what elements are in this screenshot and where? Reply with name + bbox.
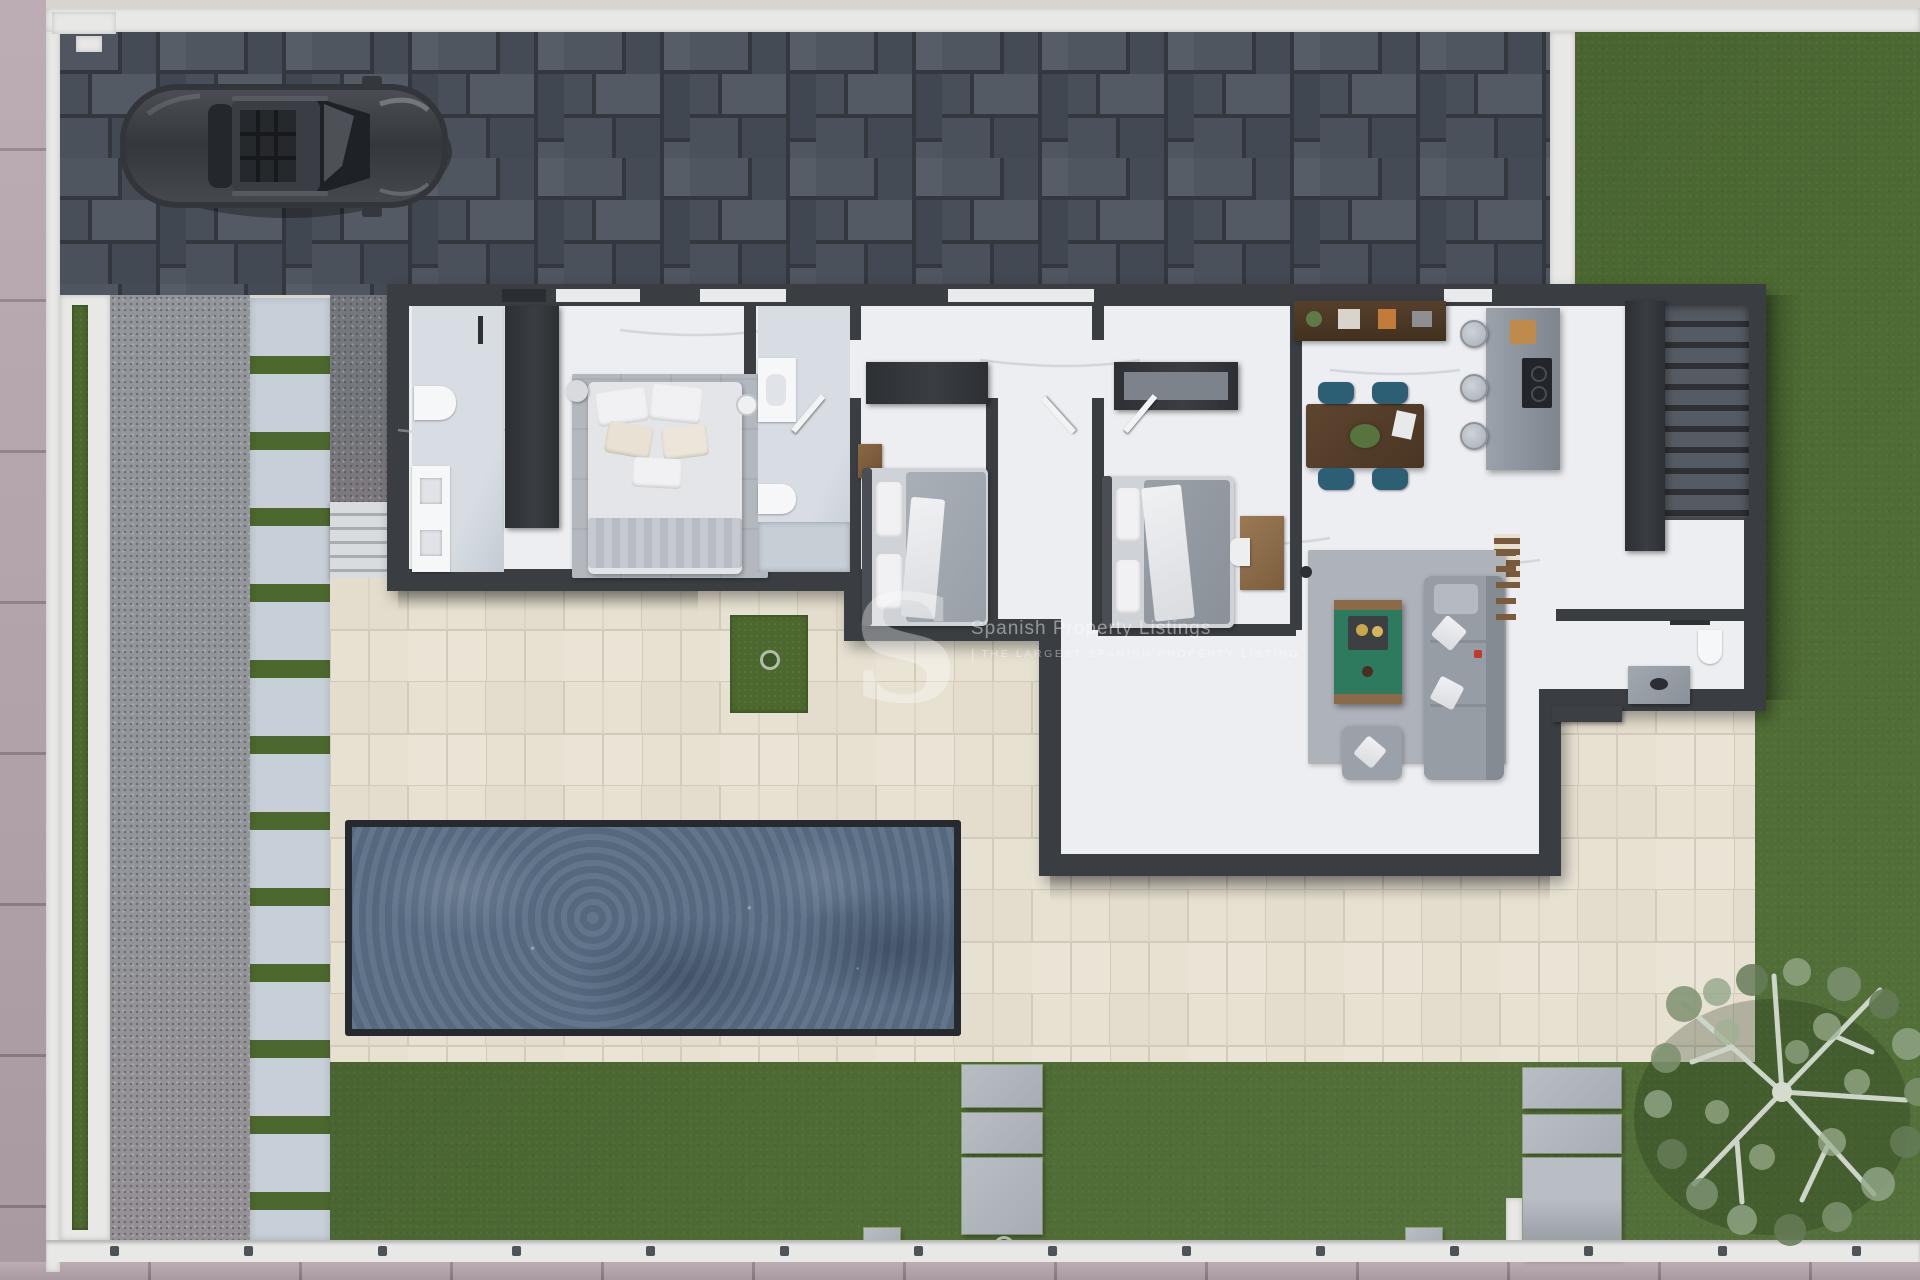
sink-icon [420, 530, 442, 556]
toilet-icon-1 [414, 386, 456, 420]
coffee-table [1334, 600, 1402, 704]
stepping-stone [1523, 1115, 1621, 1153]
fence-post [646, 1246, 655, 1256]
burner [1531, 386, 1547, 402]
stepping-stone [962, 1158, 1042, 1234]
fence-post [244, 1246, 253, 1256]
pillow [660, 423, 710, 460]
fence-post [378, 1246, 387, 1256]
burner [1531, 366, 1547, 382]
books-decor [1338, 309, 1360, 329]
gold-bowl [1372, 626, 1383, 637]
wardrobe-bedroom3 [1114, 362, 1238, 410]
outdoor-bench [1552, 706, 1622, 722]
fence-post [914, 1246, 923, 1256]
vase-decor [1412, 311, 1432, 327]
headboard [1102, 476, 1112, 628]
house-shadow-east [1766, 295, 1802, 700]
window-top-2 [700, 289, 786, 302]
dining-chair [1318, 468, 1354, 490]
bed-throw-blanket [588, 518, 742, 568]
vanity-3 [1628, 666, 1690, 704]
stepping-stone [962, 1065, 1042, 1107]
pillow [876, 554, 902, 610]
pillow [1116, 488, 1140, 542]
shower-fixture-icon [478, 316, 483, 344]
dining-chair [1372, 382, 1408, 404]
bed-bedroom2 [862, 468, 988, 626]
toilet-icon-3 [1698, 630, 1722, 664]
stepping-stone [962, 1113, 1042, 1153]
cushion-seam [1430, 704, 1486, 707]
folded-blanket [1353, 735, 1387, 769]
bar-stool [1460, 320, 1488, 348]
table-plant-icon [1350, 424, 1380, 448]
vanity-2 [758, 358, 796, 422]
floor-plan-render: S Spanish Property Listings | THE LARGES… [0, 0, 1920, 1280]
wardrobe-open-front [1124, 372, 1228, 400]
entry-door [502, 289, 546, 302]
kitchen-island [1486, 308, 1560, 470]
sofa [1424, 576, 1504, 780]
frame-decor [1378, 309, 1396, 329]
pillow [1116, 560, 1140, 614]
window-top-1 [556, 289, 640, 302]
fence-post [1450, 1246, 1459, 1256]
cooktop-icon [1522, 358, 1552, 408]
desk-chair [1230, 538, 1250, 566]
sideboard [1294, 301, 1446, 341]
decor-ladder [1496, 540, 1516, 620]
headboard [862, 468, 872, 626]
fence-post [512, 1246, 521, 1256]
sofa-pillow [1431, 615, 1468, 652]
bed-bedroom3 [1102, 476, 1234, 628]
bar-stool [1460, 374, 1488, 402]
house-shadow-south [1050, 876, 1550, 902]
sofa-headrest [1434, 584, 1478, 614]
wardrobe-master [505, 306, 559, 528]
pillow [604, 420, 655, 460]
fence-post [1048, 1246, 1057, 1256]
red-accent [1474, 650, 1482, 658]
sink-icon [766, 374, 786, 406]
cutting-board [1510, 320, 1536, 344]
decor-dot [1362, 666, 1373, 677]
sink-icon [420, 478, 442, 504]
fence-post [780, 1246, 789, 1256]
pillow [876, 482, 902, 538]
pillow [631, 457, 683, 490]
fence-post [1316, 1246, 1325, 1256]
window-top-3 [948, 289, 1094, 302]
ottoman [1342, 726, 1402, 780]
gold-bowl [1356, 624, 1368, 636]
dining-chair [1318, 382, 1354, 404]
fence-post [110, 1246, 119, 1256]
pillow [594, 387, 650, 428]
plant-icon [1306, 311, 1322, 327]
bar-stool [1460, 422, 1488, 450]
window-top-4 [1444, 289, 1492, 302]
fence-post [1584, 1246, 1593, 1256]
pillow [648, 383, 703, 424]
nightstand-round [736, 394, 758, 416]
tree-icon [1622, 932, 1920, 1262]
stepping-stone [1523, 1068, 1621, 1108]
fence-post [1182, 1246, 1191, 1256]
shower-tray-2 [758, 522, 850, 572]
floor-lamp-icon [1300, 566, 1312, 578]
dining-chair [1372, 468, 1408, 490]
towel-bar [1670, 620, 1710, 625]
magazine [1392, 410, 1417, 440]
house-shadow-south2 [398, 591, 698, 611]
staircase [1665, 306, 1749, 520]
nightstand-round [566, 380, 588, 402]
bed-master [588, 382, 742, 574]
basin-icon [1650, 678, 1668, 690]
wardrobe-bedroom2 [866, 362, 988, 404]
tall-cabinets [1625, 301, 1665, 551]
dining-table [1306, 404, 1424, 468]
toilet-icon-2 [758, 484, 796, 514]
double-vanity-1 [412, 466, 450, 572]
